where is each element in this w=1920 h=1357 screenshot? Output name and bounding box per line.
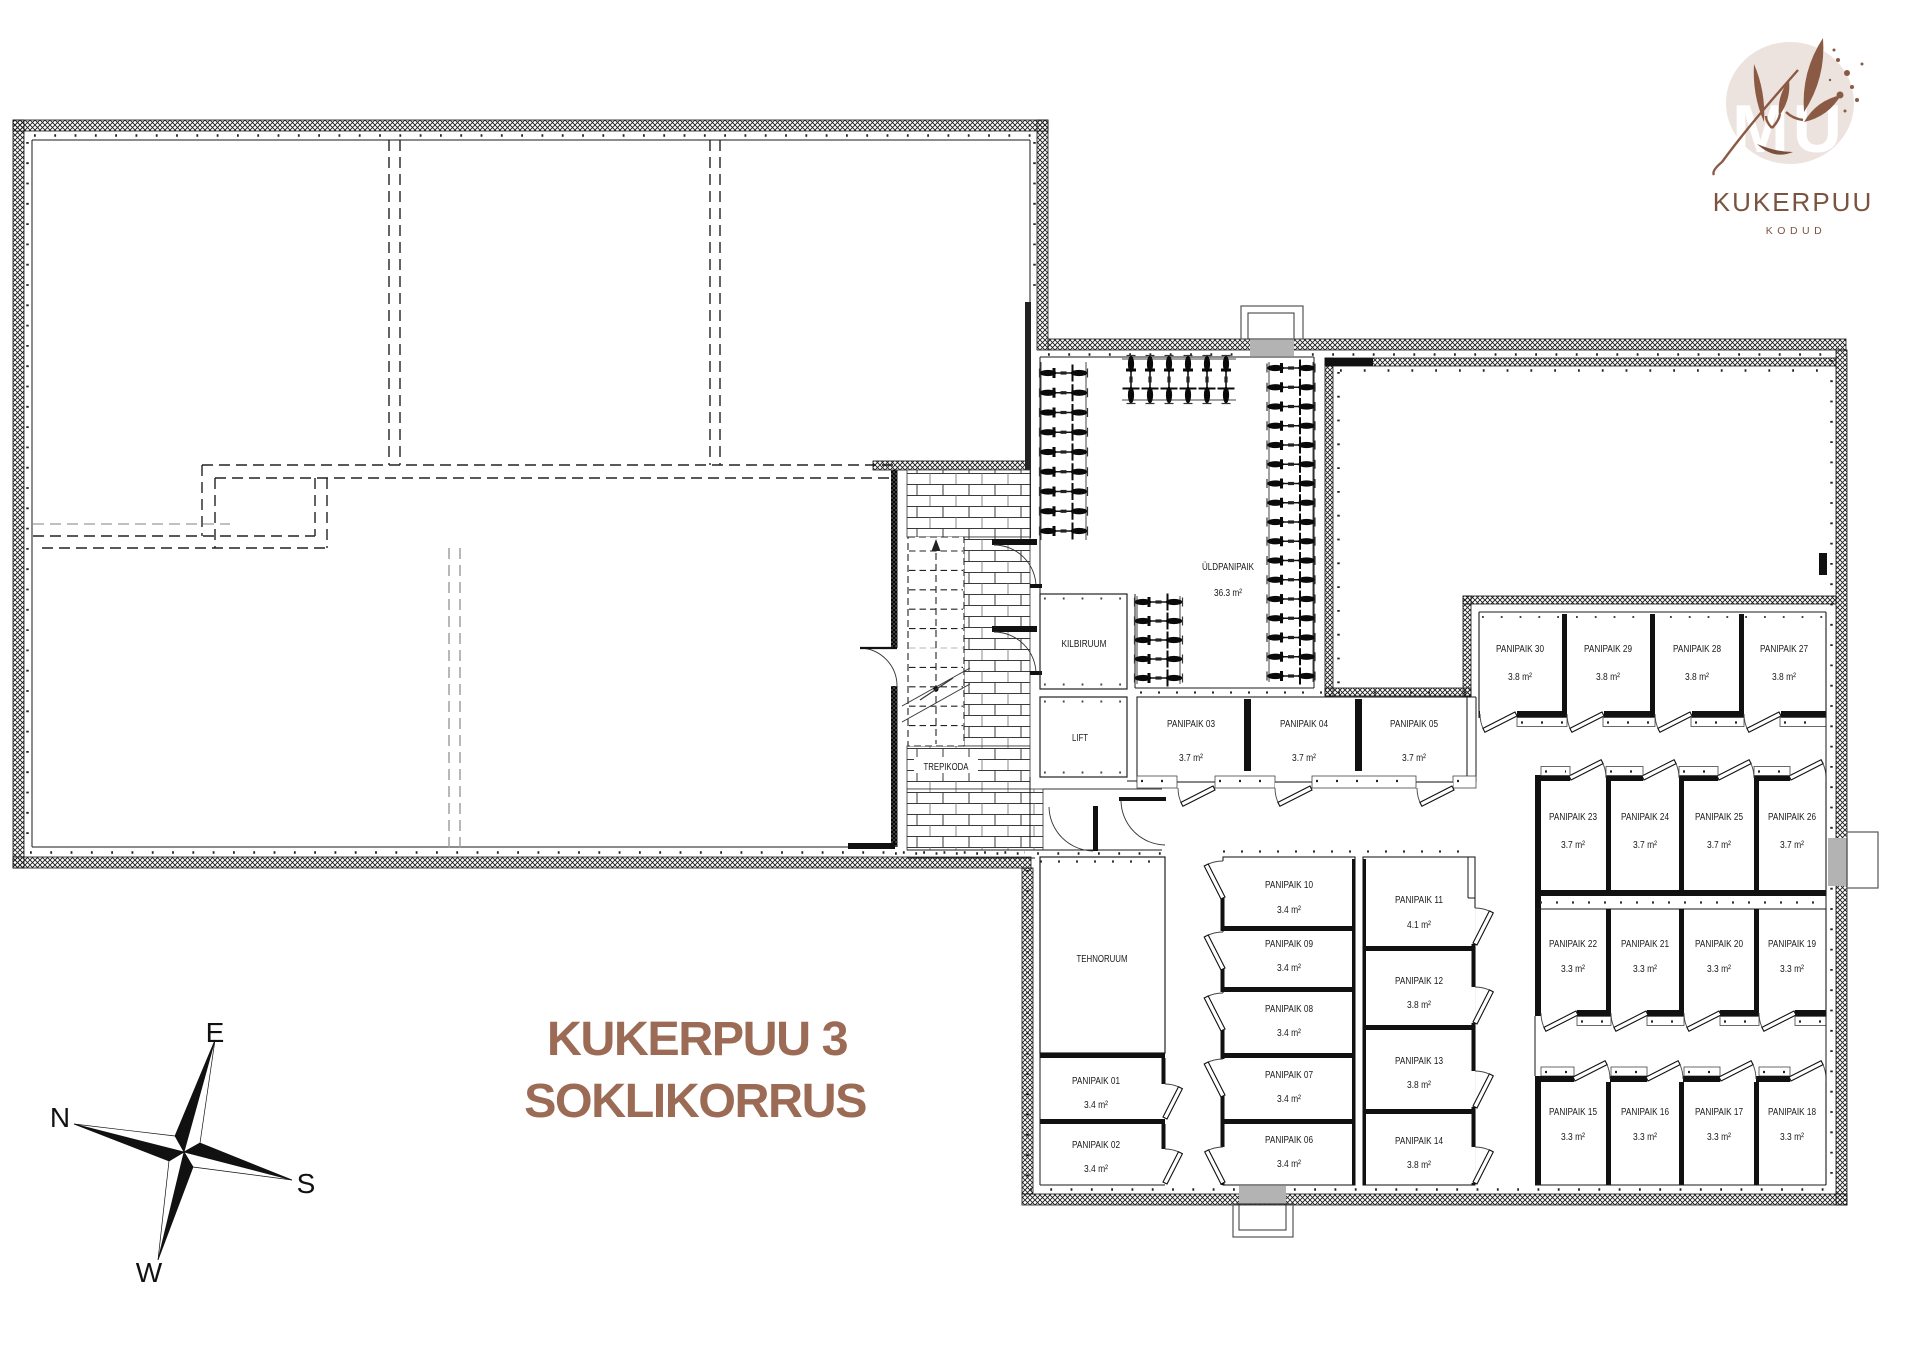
svg-text:3.4 m²: 3.4 m²	[1277, 1159, 1302, 1170]
svg-text:PANIPAIK 13: PANIPAIK 13	[1395, 1056, 1443, 1067]
svg-text:3.3 m²: 3.3 m²	[1707, 1132, 1732, 1143]
svg-text:PANIPAIK 14: PANIPAIK 14	[1395, 1136, 1443, 1147]
svg-text:4.1 m²: 4.1 m²	[1407, 920, 1432, 931]
svg-text:ÜLDPANIPAIK: ÜLDPANIPAIK	[1202, 561, 1254, 573]
svg-text:36.3 m²: 36.3 m²	[1214, 588, 1243, 599]
svg-text:3.8 m²: 3.8 m²	[1407, 1160, 1432, 1171]
svg-text:3.7 m²: 3.7 m²	[1780, 840, 1805, 851]
svg-text:3.4 m²: 3.4 m²	[1277, 1094, 1302, 1105]
svg-text:3.7 m²: 3.7 m²	[1179, 753, 1204, 764]
svg-text:PANIPAIK 23: PANIPAIK 23	[1549, 812, 1597, 823]
svg-text:PANIPAIK 28: PANIPAIK 28	[1673, 644, 1721, 655]
svg-text:KILBIRUUM: KILBIRUUM	[1062, 639, 1107, 650]
svg-text:KUKERPUU 3: KUKERPUU 3	[547, 1012, 848, 1066]
svg-text:PANIPAIK 21: PANIPAIK 21	[1621, 939, 1669, 950]
svg-text:S V: S V	[1769, 163, 1811, 175]
svg-text:3.8 m²: 3.8 m²	[1596, 672, 1621, 683]
svg-text:PANIPAIK 09: PANIPAIK 09	[1265, 939, 1313, 950]
svg-text:PANIPAIK 27: PANIPAIK 27	[1760, 644, 1808, 655]
svg-text:PANIPAIK 22: PANIPAIK 22	[1549, 939, 1597, 950]
svg-text:3.7 m²: 3.7 m²	[1561, 840, 1586, 851]
svg-text:PANIPAIK 07: PANIPAIK 07	[1265, 1070, 1313, 1081]
svg-text:3.8 m²: 3.8 m²	[1508, 672, 1533, 683]
svg-text:PANIPAIK 15: PANIPAIK 15	[1549, 1107, 1597, 1118]
svg-text:3.7 m²: 3.7 m²	[1402, 753, 1427, 764]
svg-text:3.3 m²: 3.3 m²	[1561, 964, 1586, 975]
svg-text:PANIPAIK 16: PANIPAIK 16	[1621, 1107, 1669, 1118]
svg-text:PANIPAIK 18: PANIPAIK 18	[1768, 1107, 1816, 1118]
svg-text:PANIPAIK 20: PANIPAIK 20	[1695, 939, 1743, 950]
svg-text:3.4 m²: 3.4 m²	[1084, 1164, 1109, 1175]
svg-text:PANIPAIK 02: PANIPAIK 02	[1072, 1140, 1120, 1151]
svg-text:PANIPAIK 26: PANIPAIK 26	[1768, 812, 1816, 823]
svg-text:3.4 m²: 3.4 m²	[1277, 905, 1302, 916]
svg-text:3.8 m²: 3.8 m²	[1407, 1080, 1432, 1091]
svg-text:3.3 m²: 3.3 m²	[1707, 964, 1732, 975]
svg-text:3.4 m²: 3.4 m²	[1277, 1028, 1302, 1039]
svg-text:LIFT: LIFT	[1072, 733, 1088, 744]
svg-text:3.3 m²: 3.3 m²	[1633, 964, 1658, 975]
svg-text:3.3 m²: 3.3 m²	[1780, 964, 1805, 975]
svg-text:PANIPAIK 11: PANIPAIK 11	[1395, 895, 1443, 906]
svg-text:PANIPAIK 04: PANIPAIK 04	[1280, 719, 1328, 730]
svg-text:PANIPAIK 10: PANIPAIK 10	[1265, 880, 1313, 891]
svg-text:3.7 m²: 3.7 m²	[1292, 753, 1317, 764]
svg-text:PANIPAIK 06: PANIPAIK 06	[1265, 1135, 1313, 1146]
svg-text:PANIPAIK 24: PANIPAIK 24	[1621, 812, 1669, 823]
svg-text:E: E	[206, 1017, 225, 1048]
svg-text:W: W	[136, 1257, 163, 1288]
svg-text:3.7 m²: 3.7 m²	[1633, 840, 1658, 851]
svg-text:PANIPAIK 12: PANIPAIK 12	[1395, 976, 1443, 987]
svg-text:3.8 m²: 3.8 m²	[1407, 1000, 1432, 1011]
svg-text:3.3 m²: 3.3 m²	[1633, 1132, 1658, 1143]
svg-text:S: S	[297, 1168, 316, 1199]
svg-text:3.4 m²: 3.4 m²	[1084, 1100, 1109, 1111]
svg-text:PANIPAIK 19: PANIPAIK 19	[1768, 939, 1816, 950]
svg-text:PANIPAIK 05: PANIPAIK 05	[1390, 719, 1438, 730]
svg-text:3.8 m²: 3.8 m²	[1685, 672, 1710, 683]
svg-text:3.7 m²: 3.7 m²	[1707, 840, 1732, 851]
svg-text:PANIPAIK 03: PANIPAIK 03	[1167, 719, 1215, 730]
svg-text:3.8 m²: 3.8 m²	[1772, 672, 1797, 683]
svg-text:KODUD: KODUD	[1766, 225, 1826, 237]
svg-text:3.3 m²: 3.3 m²	[1780, 1132, 1805, 1143]
svg-text:TEHNORUUM: TEHNORUUM	[1077, 954, 1128, 965]
svg-text:PANIPAIK 17: PANIPAIK 17	[1695, 1107, 1743, 1118]
svg-text:3.4 m²: 3.4 m²	[1277, 963, 1302, 974]
svg-text:3.3 m²: 3.3 m²	[1561, 1132, 1586, 1143]
svg-text:PANIPAIK 01: PANIPAIK 01	[1072, 1076, 1120, 1087]
svg-text:KUKERPUU: KUKERPUU	[1713, 187, 1873, 217]
svg-text:PANIPAIK 08: PANIPAIK 08	[1265, 1004, 1313, 1015]
svg-text:SOKLIKORRUS: SOKLIKORRUS	[524, 1074, 866, 1128]
svg-text:PANIPAIK 25: PANIPAIK 25	[1695, 812, 1743, 823]
svg-text:PANIPAIK 29: PANIPAIK 29	[1584, 644, 1632, 655]
svg-text:N: N	[50, 1102, 70, 1133]
svg-text:PANIPAIK 30: PANIPAIK 30	[1496, 644, 1544, 655]
svg-text:TREPIKODA: TREPIKODA	[924, 762, 969, 773]
